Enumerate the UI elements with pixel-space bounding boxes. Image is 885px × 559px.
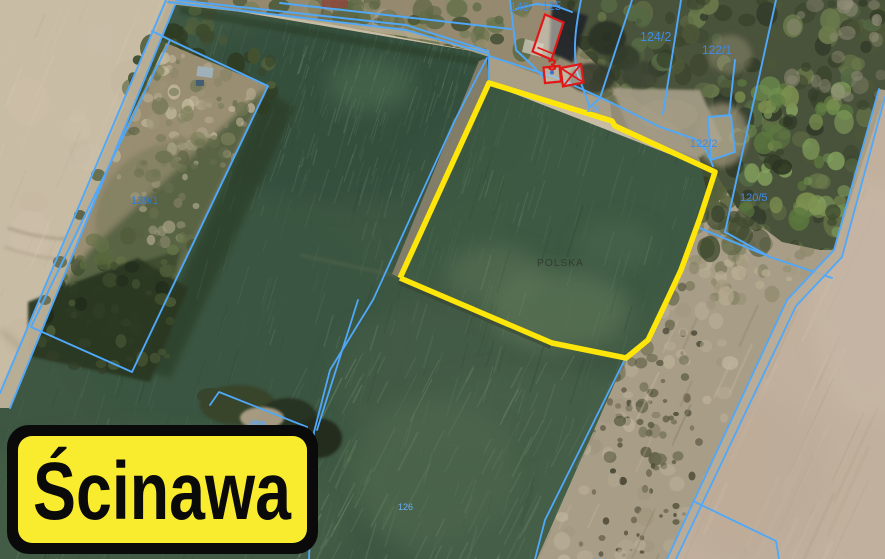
- svg-text:126: 126: [398, 502, 413, 512]
- svg-text:125: 125: [542, 1, 561, 13]
- svg-text:122/1: 122/1: [702, 43, 732, 57]
- svg-text:124/2: 124/2: [640, 30, 671, 44]
- svg-text:POLSKA: POLSKA: [537, 257, 584, 269]
- svg-text:139/1: 139/1: [131, 195, 159, 207]
- svg-text:126: 126: [586, 104, 600, 114]
- svg-text:Ścinawa: Ścinawa: [33, 446, 292, 537]
- svg-text:122/2: 122/2: [690, 138, 718, 150]
- svg-text:120/5: 120/5: [740, 192, 768, 204]
- svg-text:140: 140: [510, 2, 529, 14]
